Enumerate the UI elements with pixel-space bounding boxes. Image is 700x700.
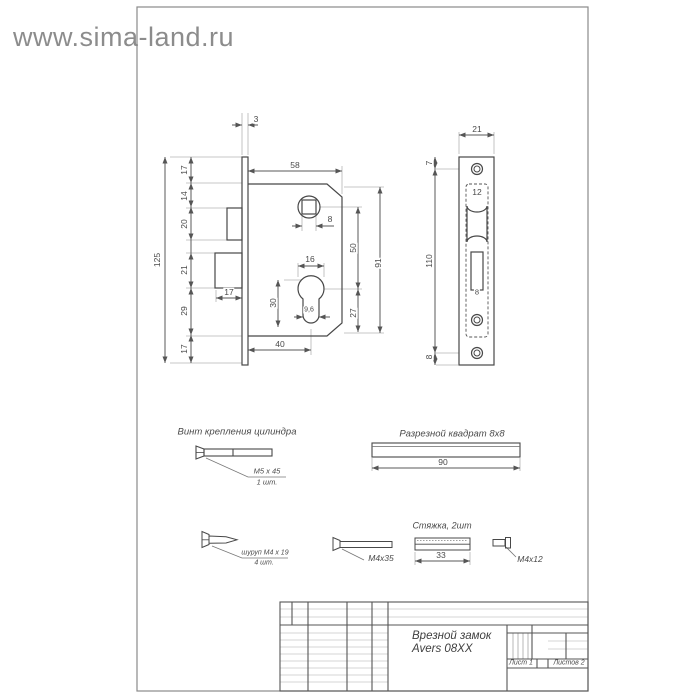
faceplate-edge [242,157,248,365]
title-block-product: Врезной замок Avers 08XX [412,630,491,656]
dim-label-spindle-square: 8 [327,215,334,224]
dim-label-tie-length: 33 [435,551,446,560]
dim-label-plate-thickness: 3 [253,115,260,124]
cylinder-screw-drawing [196,446,272,459]
dim-label-bolt-throw: 17 [223,288,234,297]
part-title-square-bar: Разрезной квадрат 8х8 [398,429,505,439]
dim-label-bolt-opening-width: 8 [474,288,480,296]
dim-label-faceplate-height: 110 [425,253,434,269]
dim-label-total-height: 125 [153,252,162,268]
tie-drawing [415,538,470,550]
dim-label-body-width: 58 [289,161,300,170]
dim-label-seg-14: 14 [180,190,189,201]
drawing-page: www.sima-land.ru 3 58 17 14 20 21 29 17 … [0,0,700,700]
spindle-hole [298,196,320,218]
dim-label-hole-offset-bottom: 8 [425,354,434,361]
dim-label-latch-height: 20 [180,218,189,229]
part-title-tie: Стяжка, 2шт [411,522,472,531]
part-title-cylinder-screw: Винт крепления цилиндра [177,427,298,437]
dim-label-body-height: 91 [374,257,383,268]
dim-label-faceplate-width: 21 [471,125,482,134]
product-name-line2: Avers 08XX [412,643,491,656]
wood-screw-drawing [202,532,237,548]
dim-label-stem-width: 9,6 [303,307,315,314]
part-label-wood-screw-qty: 4 шт. [253,560,274,567]
dim-label-seg-29: 29 [180,305,189,316]
watermark-text: www.sima-land.ru [13,22,234,53]
title-block-sheet: Лист 1 [508,660,534,667]
dim-label-bolt-height: 21 [180,264,189,275]
dim-label-seg-17-top: 17 [180,164,189,175]
technical-drawing-canvas [0,0,700,700]
dim-label-cutout-width: 12 [471,188,482,197]
dim-label-seg-17-bottom: 17 [180,343,189,354]
dim-label-cylinder-to-bottom: 27 [349,307,358,318]
part-label-machine-screw: М4х35 [367,554,395,563]
dim-label-spindle-to-cylinder: 50 [349,242,358,253]
sleeve-drawing [493,538,511,549]
part-label-cylinder-screw-size: М5 х 45 [253,467,282,475]
dim-label-square-bar-length: 90 [437,458,448,467]
latch-bolt [227,208,242,240]
dim-label-cylinder-depth: 30 [269,297,278,308]
lock-body-view [215,157,342,365]
cylinder-hole [298,276,324,323]
sheet-frame [137,7,588,691]
part-label-wood-screw-size: шуруп М4 х 19 [240,550,289,557]
machine-screw-drawing [333,538,392,551]
dead-bolt [215,253,242,288]
part-label-cylinder-screw-qty: 1 шт. [256,478,279,486]
part-label-sleeve: М4х12 [516,555,544,564]
dim-label-hole-offset-top: 7 [425,160,434,167]
title-block-sheets: Листов 2 [552,660,585,667]
dim-label-backset: 40 [274,340,285,349]
product-name-line1: Врезной замок [412,630,491,643]
dim-label-cylinder-width: 16 [304,255,315,264]
square-bar-drawing [372,443,520,457]
